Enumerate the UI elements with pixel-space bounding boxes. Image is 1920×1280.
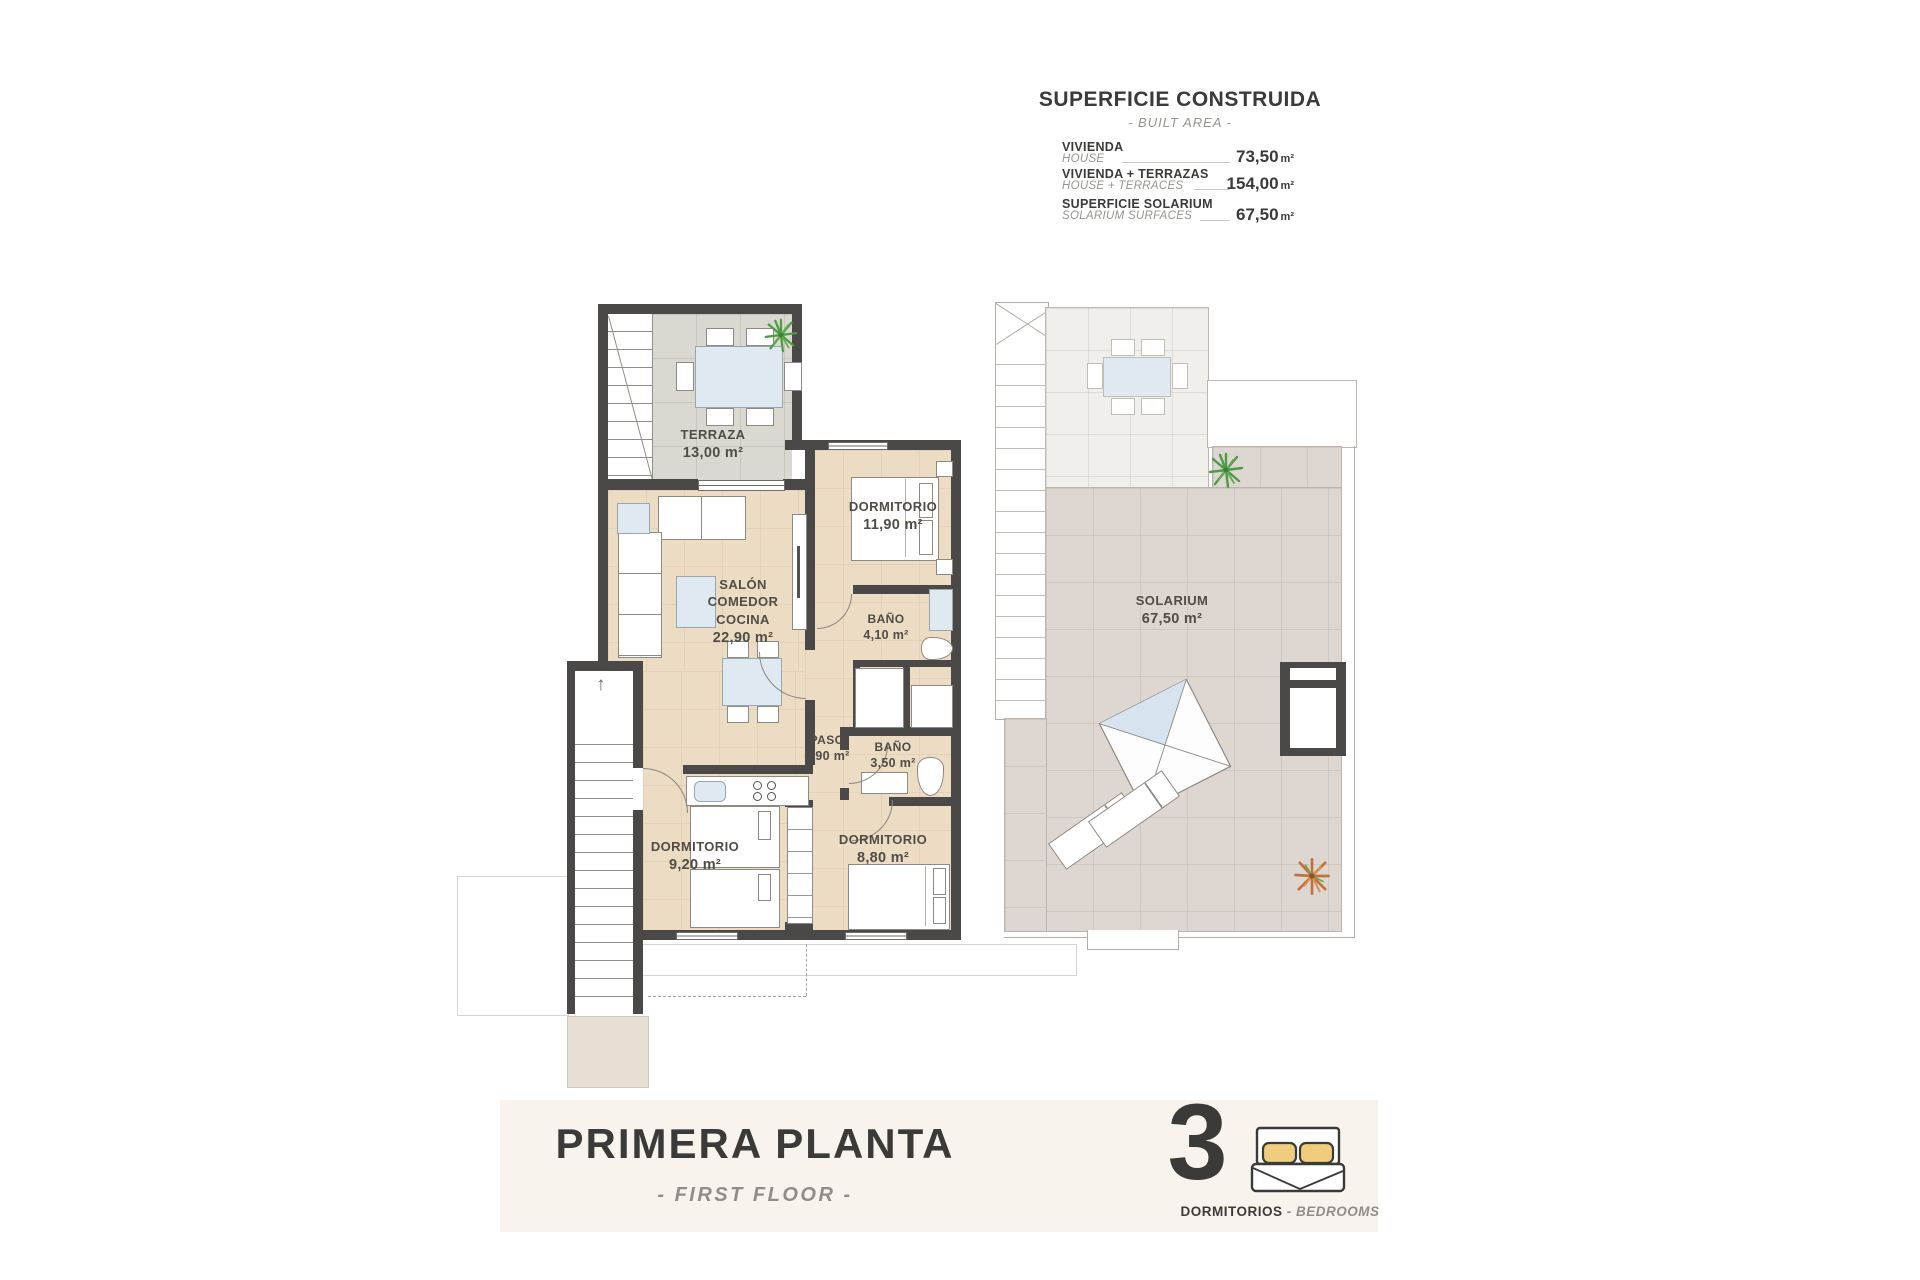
stove-burner (753, 781, 762, 790)
area-label-es: SUPERFICIE SOLARIUM (1062, 197, 1213, 211)
pillow (933, 897, 946, 924)
built-area-title: SUPERFICIE CONSTRUIDA (1015, 88, 1345, 112)
wall (853, 660, 951, 667)
nightstand (936, 461, 953, 477)
kitchen-sink (694, 781, 726, 802)
solarium-step (1087, 930, 1179, 950)
leader-line (1200, 220, 1230, 221)
floor-title: PRIMERA PLANTA (505, 1120, 1005, 1168)
chair (746, 408, 774, 426)
area-label-es: VIVIENDA (1062, 140, 1123, 154)
chair (1111, 339, 1135, 356)
stove-burner (767, 781, 776, 790)
room-label-dormitorio1: DORMITORIO 11,90 m² (832, 498, 954, 533)
pillow (933, 868, 946, 895)
wall (889, 797, 951, 806)
wardrobe (787, 807, 813, 924)
ghost-outline (457, 876, 569, 1016)
chair (1141, 339, 1165, 356)
window (676, 932, 738, 940)
bed-sheet-line (925, 866, 926, 926)
area-value: 67,50m² (1236, 205, 1294, 225)
chair (1172, 363, 1188, 389)
window (828, 442, 888, 450)
wall (633, 671, 643, 768)
area-value: 154,00m² (1227, 174, 1294, 194)
sofa (618, 532, 662, 658)
wall (598, 479, 608, 671)
built-area-subtitle: - BUILT AREA - (1015, 115, 1345, 130)
room-label-terraza: TERRAZA 13,00 m² (652, 426, 774, 461)
wall (783, 479, 805, 490)
pillow (758, 811, 771, 840)
wall (903, 662, 910, 732)
shower (855, 668, 904, 728)
chair (727, 706, 749, 723)
stove-burner (753, 792, 762, 801)
wall (683, 765, 813, 774)
side-table (617, 503, 650, 534)
room-label-dormitorio3: DORMITORIO 8,80 m² (822, 831, 944, 866)
window (698, 480, 785, 491)
chair (1111, 398, 1135, 415)
ghost-outline (628, 944, 1077, 976)
wall (633, 940, 643, 1014)
wall (598, 479, 698, 490)
solarium-recess (1207, 380, 1357, 448)
dashed-line (806, 944, 807, 996)
entry-stairs (575, 727, 633, 1014)
terrace-dining-table (695, 346, 783, 408)
room-label-dormitorio2: DORMITORIO 9,20 m² (640, 838, 750, 873)
wall (575, 661, 643, 671)
area-row-house: VIVIENDA HOUSE 73,50m² (1062, 140, 1294, 167)
autumn-plant-icon (1290, 854, 1334, 898)
chair (1087, 363, 1103, 389)
area-row-house-terraces: VIVIENDA + TERRAZAS HOUSE + TERRACES 154… (1062, 167, 1294, 194)
chair (784, 362, 802, 391)
floor-plan-page: SUPERFICIE CONSTRUIDA - BUILT AREA - VIV… (0, 0, 1920, 1280)
sofa (658, 496, 746, 540)
chair (757, 706, 779, 723)
unit-slot (1290, 688, 1336, 748)
wall (598, 304, 802, 314)
area-label-es: VIVIENDA + TERRAZAS (1062, 167, 1209, 181)
wall (633, 810, 643, 940)
nightstand (936, 559, 953, 575)
room-label-solarium: SOLARIUM 67,50 m² (1110, 592, 1234, 627)
room-label-salon: SALÓN COMEDOR COCINA 22,90 m² (688, 576, 798, 646)
outline (1354, 446, 1355, 938)
floor-subtitle: - FIRST FLOOR - (505, 1184, 1005, 1207)
area-row-solarium: SUPERFICIE SOLARIUM SOLARIUM SURFACES 67… (1062, 197, 1294, 225)
wall (598, 304, 608, 490)
area-label-en: HOUSE (1062, 153, 1104, 165)
wall (840, 788, 849, 800)
closet (911, 685, 953, 728)
area-value: 73,50m² (1236, 147, 1294, 167)
stair-up-arrow: ↑ (596, 674, 606, 696)
window (845, 932, 907, 940)
outline (1004, 937, 1355, 938)
chair (1141, 398, 1165, 415)
plant-icon (1206, 450, 1246, 490)
chair (706, 408, 734, 426)
room-label-bano1: BAÑO 4,10 m² (826, 611, 946, 642)
entry-porch (567, 1016, 649, 1088)
chair (706, 328, 734, 346)
bed-icon (1250, 1126, 1346, 1200)
plant-icon (762, 316, 800, 354)
chair (676, 362, 694, 391)
pillow (758, 874, 771, 901)
area-label-en: SOLARIUM SURFACES (1062, 210, 1192, 222)
bedrooms-label: DORMITORIOS - BEDROOMS (1140, 1204, 1420, 1219)
solarium-floor (1004, 718, 1047, 932)
area-label-en: HOUSE + TERRACES (1062, 180, 1183, 192)
bedrooms-count: 3 (1150, 1088, 1245, 1196)
ghost-table (1103, 357, 1171, 397)
dashed-line (648, 996, 806, 997)
leader-line (1122, 162, 1230, 163)
leader-line (1194, 189, 1230, 190)
room-label-bano2: BAÑO 3,50 m² (853, 739, 933, 770)
unit-slot (1290, 668, 1336, 680)
stove-burner (767, 792, 776, 801)
wall (567, 661, 575, 1014)
solarium-stairs-treads (996, 344, 1046, 717)
